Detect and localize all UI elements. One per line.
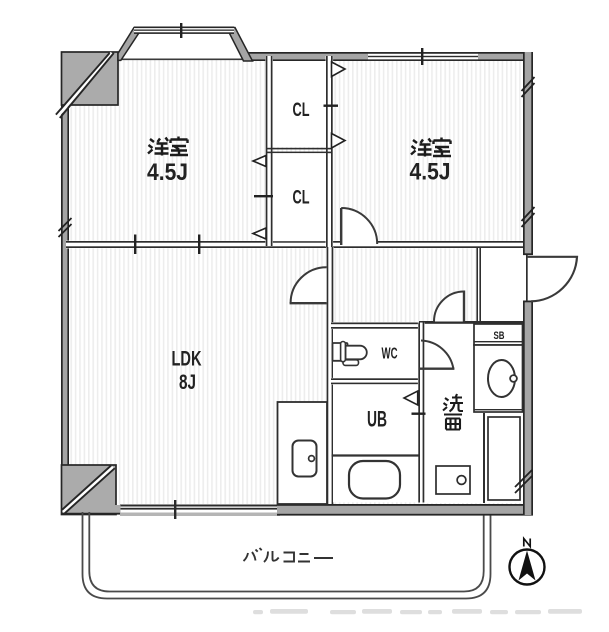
svg-text:WC: WC xyxy=(382,346,398,363)
svg-text:8J: 8J xyxy=(179,371,196,394)
svg-text:4.5J: 4.5J xyxy=(410,159,451,186)
svg-text:CL: CL xyxy=(293,188,310,209)
svg-text:SB: SB xyxy=(494,330,505,342)
svg-text:UB: UB xyxy=(367,407,387,432)
svg-text:LDK: LDK xyxy=(172,348,202,371)
svg-text:CL: CL xyxy=(293,100,310,121)
svg-text:4.5J: 4.5J xyxy=(147,159,188,186)
